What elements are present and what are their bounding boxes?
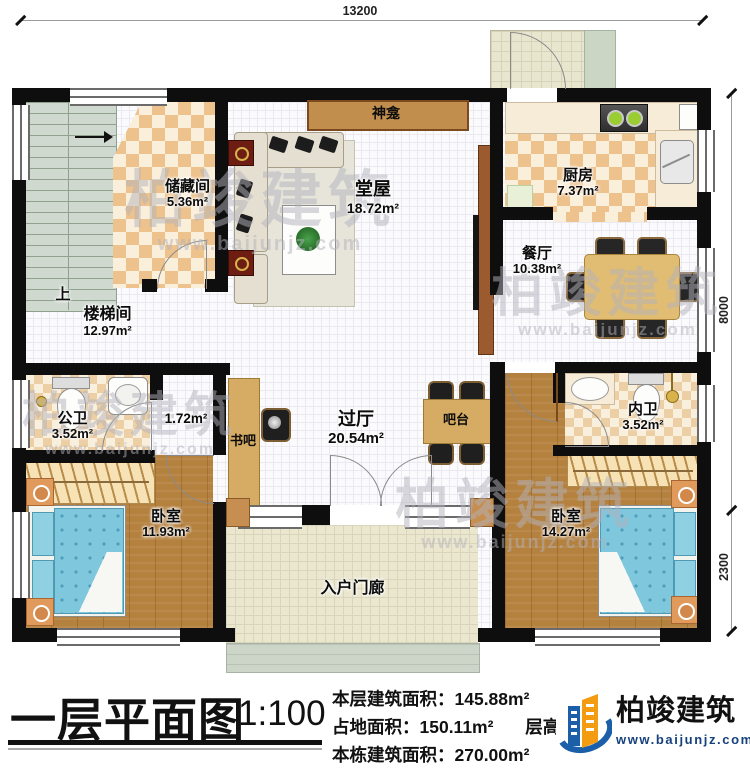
room-name: 卧室	[520, 508, 612, 525]
room-area: 7.37m²	[528, 184, 628, 199]
room-label-kitchen: 厨房 7.37m²	[528, 167, 628, 199]
room-area: 3.52m²	[30, 427, 115, 442]
stair-arrow-head	[104, 131, 113, 143]
room-name: 楼梯间	[40, 306, 175, 324]
window	[70, 88, 167, 106]
room-name: 卧室	[120, 508, 212, 525]
room-name: 厨房	[528, 167, 628, 184]
room-label-bedroom1: 卧室 11.93m²	[120, 508, 212, 540]
total-area-label: 本栋建筑面积：	[332, 745, 455, 765]
floor-area-value: 145.88m²	[455, 689, 530, 709]
title-underline	[8, 740, 322, 745]
wall	[492, 525, 505, 628]
wall	[205, 279, 228, 292]
room-label-hall: 堂屋 18.72m²	[320, 179, 426, 216]
porch-step	[226, 643, 480, 673]
nightstand	[671, 596, 699, 624]
room-area: 20.54m²	[300, 430, 412, 447]
room-area: 5.36m²	[140, 195, 235, 210]
dimension-line-top	[20, 20, 703, 21]
desk-chair-cushion	[268, 416, 281, 429]
total-area-row: 本栋建筑面积：270.00m²	[332, 742, 529, 767]
room-label-bar: 吧台	[423, 413, 489, 428]
wall	[142, 279, 157, 292]
room-label-inner-bath: 内卫 3.52m²	[600, 401, 686, 433]
room-area: 14.27m²	[520, 525, 612, 540]
stove-burner-icon	[607, 110, 624, 127]
bed-pillow	[32, 512, 54, 556]
room-label-public-bath: 公卫 3.52m²	[30, 410, 115, 442]
room-name: 储藏间	[140, 178, 235, 195]
room-name: 内卫	[600, 401, 686, 418]
kitchen-threshold	[553, 212, 647, 222]
wall	[490, 207, 553, 220]
dimension-label-top: 13200	[325, 4, 395, 18]
tv-icon	[473, 215, 479, 310]
room-label-foyer: 过厅 20.54m²	[300, 409, 412, 447]
patio-steps	[584, 30, 616, 90]
total-area-value: 270.00m²	[455, 745, 530, 765]
window	[57, 628, 180, 646]
land-area-row: 占地面积：150.11m² 层高：	[332, 714, 578, 739]
floor-area-label: 本层建筑面积：	[332, 689, 455, 709]
floor-area-row: 本层建筑面积：145.88m²	[332, 686, 529, 711]
brand-logo: 柏竣建筑 www.baijunjz.com	[556, 688, 746, 770]
room-label-bedroom2: 卧室 14.27m²	[520, 508, 612, 540]
room-name: 堂屋	[320, 179, 426, 200]
window	[697, 130, 715, 192]
room-name: 餐厅	[488, 245, 586, 262]
room-label-bookbar: 书吧	[226, 434, 260, 449]
nightstand	[26, 598, 54, 626]
room-label-dining: 餐厅 10.38m²	[488, 245, 586, 277]
room-name: 过厅	[300, 409, 412, 430]
wall	[12, 363, 230, 375]
window	[12, 380, 30, 448]
bed-pillow	[674, 512, 696, 556]
floor-plan-canvas: 13200 8000 2300	[0, 0, 750, 776]
window	[697, 248, 715, 352]
dimension-label-right-lower: 2300	[717, 543, 731, 591]
room-name: 公卫	[30, 410, 115, 427]
room-area: 12.97m²	[40, 324, 175, 339]
staircase-rail	[68, 102, 69, 310]
nightstand	[26, 478, 54, 506]
bed-blanket	[54, 552, 122, 612]
room-area: 3.52m²	[600, 418, 686, 433]
bed-blanket	[600, 552, 672, 612]
room-area: 10.38m²	[488, 262, 586, 277]
room-label-porch: 入户门廊	[270, 580, 435, 598]
closet-area-label: 1.72m²	[150, 411, 222, 427]
wall	[213, 502, 226, 628]
wall	[12, 450, 155, 463]
room-area: 18.72m²	[320, 200, 426, 216]
kitchen-corner-unit	[679, 104, 698, 130]
window	[12, 105, 30, 180]
window	[12, 512, 30, 598]
end-table	[228, 140, 254, 166]
stair-direction-arrow	[75, 136, 105, 138]
room-area: 11.93m²	[120, 525, 212, 540]
sheet-scale: 1:100	[238, 694, 326, 734]
door-opening	[505, 362, 555, 373]
brand-name: 柏竣建筑	[616, 696, 736, 726]
room-label-shrine: 神龛	[307, 105, 465, 121]
sink-basin	[115, 384, 141, 406]
room-name: 神龛	[307, 105, 465, 121]
drain-cord	[671, 373, 673, 391]
wall	[647, 207, 710, 220]
dimension-line-right	[731, 95, 732, 633]
wall	[213, 363, 226, 455]
porch-column	[470, 498, 494, 527]
end-table	[228, 250, 254, 276]
room-label-stairwell: 楼梯间 12.97m²	[40, 306, 175, 339]
dimension-label-right-upper: 8000	[717, 286, 731, 334]
porch-column	[226, 498, 250, 527]
window	[535, 628, 660, 646]
land-area-label: 占地面积：	[332, 717, 420, 737]
window	[697, 385, 715, 442]
room-label-storage: 储藏间 5.36m²	[140, 178, 235, 210]
wall	[490, 362, 505, 505]
bar-stool	[459, 442, 485, 465]
title-underline-thin	[8, 748, 322, 750]
kitchen-sink-icon	[660, 140, 694, 184]
stairs-up-label: 上	[48, 286, 78, 303]
door-opening	[507, 88, 557, 102]
window	[405, 505, 470, 529]
plant-icon	[296, 227, 320, 251]
brand-url: www.baijunjz.com	[616, 732, 750, 747]
dining-table	[584, 254, 680, 320]
bathroom-sink-icon	[571, 377, 609, 401]
floor-drain-icon	[36, 396, 47, 407]
nightstand	[671, 480, 699, 508]
stove-burner-icon	[626, 110, 643, 127]
land-area-value: 150.11m²	[420, 717, 494, 737]
wall	[150, 375, 163, 400]
baijun-logo-icon	[556, 690, 612, 764]
